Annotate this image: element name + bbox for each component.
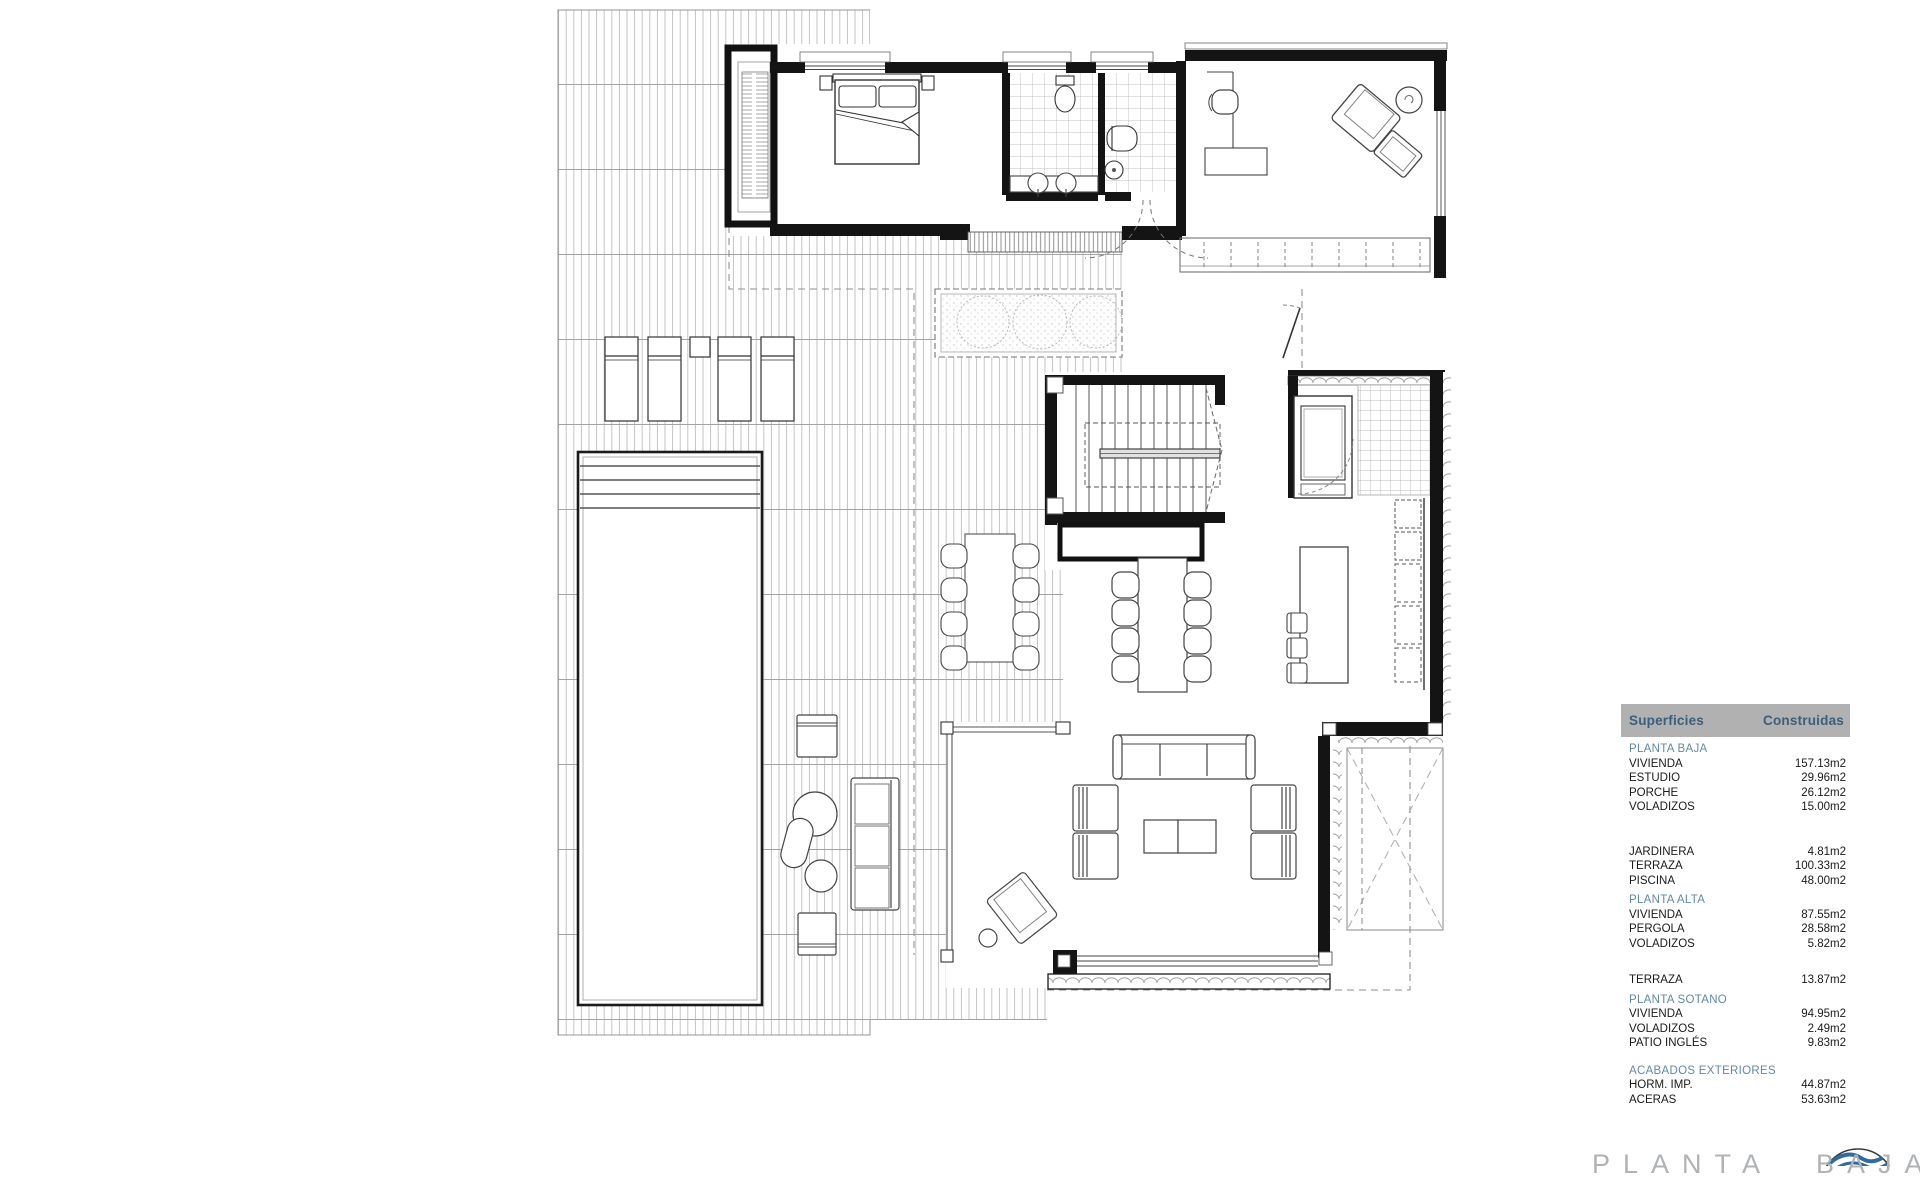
row-label: PERGOLA [1629, 922, 1685, 937]
pool [578, 452, 762, 1005]
table-row [1621, 1051, 1850, 1059]
round-side-table [1396, 87, 1422, 113]
table-row: VOLADIZOS 5.82m2 [1621, 937, 1850, 952]
small-side-table [979, 929, 997, 947]
sun-lounger [605, 337, 638, 421]
outdoor-armchair [797, 715, 837, 757]
row-label: VOLADIZOS [1629, 1022, 1695, 1037]
appliance [1294, 396, 1352, 498]
row-value: 9.83m2 [1808, 1036, 1846, 1051]
masonry-band [1048, 974, 1330, 989]
row-value: 100.33m2 [1795, 859, 1846, 874]
sun-lounger [648, 337, 681, 421]
row-label: PLANTA ALTA [1629, 893, 1705, 908]
surfaces-table-rows: PLANTA BAJA VIVIENDA 157.13m2 ESTUDIO 29… [1621, 742, 1850, 1107]
table-row: PATIO INGLÉS 9.83m2 [1621, 1036, 1850, 1051]
table-row: TERRAZA 13.87m2 [1621, 973, 1850, 988]
outdoor-sofa [851, 778, 899, 910]
armchair [1251, 785, 1296, 831]
table-row: PLANTA BAJA [1621, 742, 1850, 757]
row-label: TERRAZA [1629, 859, 1683, 874]
row-label: VIVIENDA [1629, 1007, 1683, 1022]
table-row [1621, 951, 1850, 973]
row-value: 48.00m2 [1801, 874, 1846, 889]
row-value: 13.87m2 [1801, 973, 1846, 988]
table-row: TERRAZA 100.33m2 [1621, 859, 1850, 874]
side-table [690, 337, 710, 357]
row-value: 2.49m2 [1808, 1022, 1846, 1037]
pillow [839, 86, 876, 107]
louver-closet [742, 72, 768, 198]
row-value: 94.95m2 [1801, 1007, 1846, 1022]
row-label: ACABADOS EXTERIORES [1629, 1064, 1776, 1079]
row-label: PORCHE [1629, 786, 1678, 801]
row-value: 44.87m2 [1801, 1078, 1846, 1093]
dining-indoor [1112, 558, 1211, 692]
window [1003, 52, 1071, 73]
table-row: PLANTA ALTA [1621, 893, 1850, 908]
row-label: PATIO INGLÉS [1629, 1036, 1707, 1051]
coffee-table [1144, 820, 1178, 853]
plan-title: PLANTA BAJA [1592, 1149, 1920, 1180]
row-value: 157.13m2 [1795, 757, 1846, 772]
row-label: PISCINA [1629, 874, 1675, 889]
table-row: ACABADOS EXTERIORES [1621, 1064, 1850, 1079]
table-row: PLANTA SOTANO [1621, 993, 1850, 1008]
row-label: PLANTA BAJA [1629, 742, 1708, 757]
office-chair [1212, 90, 1238, 114]
armchair [1073, 785, 1118, 831]
table-row: ESTUDIO 29.96m2 [1621, 771, 1850, 786]
row-value: 5.82m2 [1808, 937, 1846, 952]
louver-window-strip [968, 232, 1122, 252]
row-label: VOLADIZOS [1629, 937, 1695, 952]
row-label: VIVIENDA [1629, 757, 1683, 772]
row-value: 87.55m2 [1801, 908, 1846, 923]
table-row: HORM. IMP. 44.87m2 [1621, 1078, 1850, 1093]
table-row: JARDINERA 4.81m2 [1621, 845, 1850, 860]
table-row: PERGOLA 28.58m2 [1621, 922, 1850, 937]
row-label: ACERAS [1629, 1093, 1676, 1108]
surfaces-table-header: Superficies Construidas [1621, 704, 1850, 737]
window [800, 52, 890, 73]
row-label: TERRAZA [1629, 973, 1683, 988]
row-label: JARDINERA [1629, 845, 1694, 860]
dining-table [1138, 558, 1187, 692]
table-row: ACERAS 53.63m2 [1621, 1093, 1850, 1108]
table-row: PISCINA 48.00m2 [1621, 874, 1850, 889]
row-value: 29.96m2 [1801, 771, 1846, 786]
nightstand [820, 76, 832, 90]
sun-lounger [718, 337, 751, 421]
pillow [879, 86, 916, 107]
row-value: 4.81m2 [1808, 845, 1846, 860]
table-row: VIVIENDA 87.55m2 [1621, 908, 1850, 923]
row-value: 15.00m2 [1801, 800, 1846, 815]
kitchen-cabinets [1395, 564, 1421, 682]
row-label: HORM. IMP. [1629, 1078, 1693, 1093]
table-row: VIVIENDA 157.13m2 [1621, 757, 1850, 772]
bathroom [1010, 73, 1176, 197]
toilet [1055, 76, 1075, 112]
table-row: PORCHE 26.12m2 [1621, 786, 1850, 801]
row-label: PLANTA SOTANO [1629, 993, 1727, 1008]
stair-landing [1060, 525, 1202, 559]
round-pouf [805, 860, 837, 892]
row-label: VIVIENDA [1629, 908, 1683, 923]
armchair [1251, 833, 1296, 879]
wall-hung-toilet [1107, 126, 1137, 151]
row-value: 53.63m2 [1801, 1093, 1846, 1108]
sun-lounger [761, 337, 794, 421]
row-label: ESTUDIO [1629, 771, 1680, 786]
window [1091, 52, 1153, 73]
dining-outdoor [941, 534, 1039, 670]
outdoor-armchair [798, 913, 836, 955]
table-row: VIVIENDA 94.95m2 [1621, 1007, 1850, 1022]
coffee-table [1178, 820, 1216, 853]
bar-stools [1287, 613, 1307, 683]
outdoor-table [965, 534, 1015, 662]
bed [820, 74, 934, 164]
surfaces-header-value: Construidas [1763, 713, 1844, 728]
surfaces-header-label: Superficies [1629, 713, 1704, 728]
table-row: VOLADIZOS 15.00m2 [1621, 800, 1850, 815]
nightstand [922, 76, 934, 90]
planter [935, 289, 1122, 357]
row-value: 26.12m2 [1801, 786, 1846, 801]
row-value: 28.58m2 [1801, 922, 1846, 937]
table-row [1621, 815, 1850, 845]
sofa [1113, 735, 1255, 779]
surfaces-table: Superficies Construidas PLANTA BAJA VIVI… [1621, 704, 1850, 1107]
row-label: VOLADIZOS [1629, 800, 1695, 815]
armchair [1073, 833, 1118, 879]
table-row: VOLADIZOS 2.49m2 [1621, 1022, 1850, 1037]
